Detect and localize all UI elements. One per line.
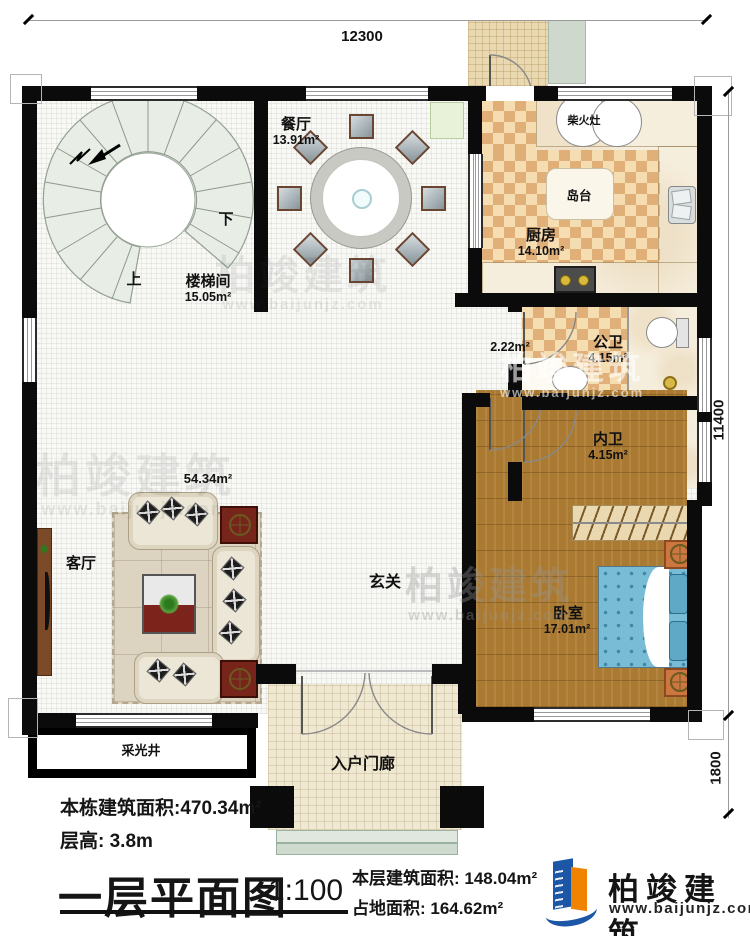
- label-inner-bath: 内卫: [593, 428, 623, 449]
- dim-line-top: [28, 20, 708, 21]
- dim-line-right: [728, 93, 729, 818]
- label-living: 客厅: [66, 552, 96, 573]
- label-porch: 入户门廊: [331, 750, 395, 774]
- footprint-area: 占地面积: 164.62m²: [352, 894, 503, 919]
- label-light-well: 采光井: [121, 740, 160, 759]
- label-kitchen-area: 14.10m²: [518, 244, 565, 258]
- wall-bath-left-a: [508, 307, 522, 312]
- label-public-bath-area: 4.15m²: [588, 351, 628, 365]
- wall-bedroom-left: [462, 393, 476, 707]
- label-bedroom-area: 17.01m²: [544, 622, 591, 636]
- pier-outline-top-left: [10, 74, 42, 104]
- wall-kitchen-bottom: [455, 293, 712, 307]
- window-kitchen-top: [558, 86, 672, 101]
- label-dining-area: 13.91m²: [273, 133, 320, 147]
- brand-website: www.baijunjz.com: [609, 900, 750, 917]
- floor-plan-sheet: 12300 11400 1800 餐厅 13.91m² 柴火灶 岛台 厨房 14…: [0, 0, 750, 936]
- label-foyer: 玄关: [369, 568, 401, 592]
- brand-logo-icon: [543, 858, 601, 926]
- window-stairwell-top: [91, 86, 197, 101]
- kitchen-door-jamb-left: [480, 86, 486, 101]
- door-leaves: [302, 55, 524, 734]
- title-underline: [60, 910, 348, 914]
- label-public-bath: 公卫: [593, 331, 623, 352]
- window-living-left: [22, 318, 37, 382]
- wall-bath-left-c: [508, 462, 522, 501]
- stair-core: [101, 153, 195, 247]
- porch-right-jog: [458, 664, 476, 714]
- dim-top-label: 12300: [341, 28, 383, 45]
- label-stairwell: 楼梯间: [185, 270, 230, 291]
- wall-left: [22, 86, 37, 735]
- label-dining: 餐厅: [281, 113, 311, 134]
- wall-bedroom-right: [687, 500, 702, 722]
- sliding-door-kitchen: [468, 154, 483, 248]
- label-kitchen: 厨房: [526, 224, 556, 245]
- drawing-title: 一层平面图: [58, 862, 288, 926]
- kitchen-door-jamb-right: [534, 86, 540, 101]
- pier-outline-bottom-right: [688, 710, 724, 740]
- wall-bath-left-b: [508, 364, 522, 397]
- door-swing-arcs: [302, 55, 576, 734]
- label-inner-bath-area: 4.15m²: [588, 448, 628, 462]
- wall-hall-bedroom-b: [540, 393, 568, 407]
- dim-right-lower-label: 1800: [708, 751, 725, 784]
- label-island: 岛台: [566, 185, 591, 204]
- label-wood-stove: 柴火灶: [568, 112, 601, 128]
- label-stairwell-area: 15.05m²: [185, 290, 232, 304]
- pier-outline-top-right: [694, 76, 732, 116]
- window-bedroom-bottom: [534, 707, 650, 722]
- pier-outline-bottom-left: [8, 698, 38, 738]
- window-living-bottom: [76, 713, 212, 728]
- porch-pillar-upper-left: [256, 664, 296, 684]
- total-building-area: 本栋建筑面积:470.34m²: [60, 793, 262, 820]
- window-dining-top: [306, 86, 428, 101]
- label-stair-down: 下: [218, 208, 233, 229]
- porch-pillar-lower-right: [440, 786, 484, 828]
- floor-area: 本层建筑面积: 148.04m²: [352, 864, 537, 889]
- dim-right-upper-label: 11400: [711, 400, 728, 441]
- drawing-scale: 1:100: [268, 874, 343, 908]
- label-bedroom: 卧室: [553, 602, 583, 623]
- label-stair-up: 上: [126, 268, 141, 289]
- label-living-area: 54.34m²: [184, 471, 232, 486]
- floor-height: 层高: 3.8m: [60, 826, 153, 853]
- label-corridor-area: 2.22m²: [490, 340, 530, 354]
- wall-stair-divider: [254, 86, 268, 312]
- kitchen-door-opening: [484, 86, 536, 101]
